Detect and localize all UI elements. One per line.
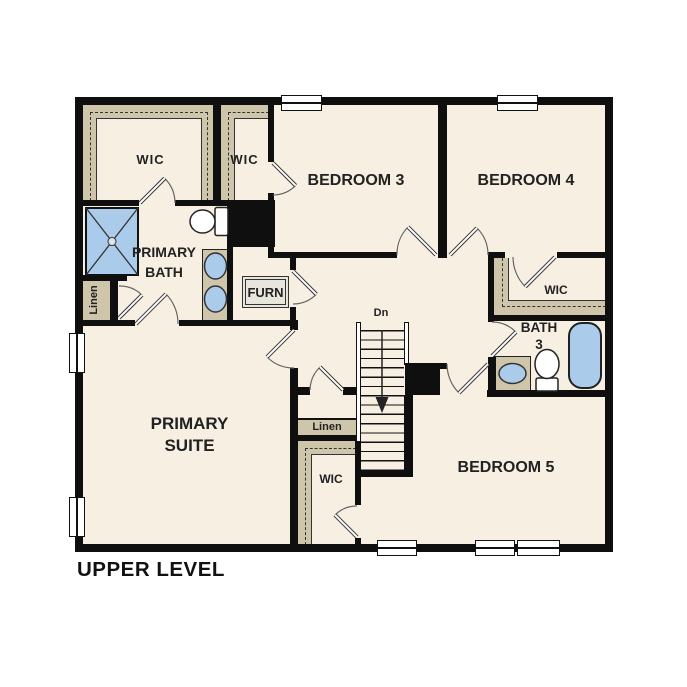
bedroom3-wic-label: WIC bbox=[221, 150, 268, 168]
primary-bath-label-line2: BATH bbox=[145, 262, 183, 282]
bath3-label-line1: BATH bbox=[521, 319, 558, 336]
bedroom5-label: BEDROOM 5 bbox=[426, 457, 586, 478]
stair-direction-label: Dn bbox=[364, 305, 398, 320]
primary-wic-label: WIC bbox=[93, 150, 208, 168]
primary-bath-door-arc bbox=[166, 294, 178, 324]
bedroom5-door-arc bbox=[447, 364, 459, 393]
floor-plan: FURN WIC WIC BEDROOM 3 BEDROOM 4 PRIMARY… bbox=[0, 0, 687, 687]
bedroom4-door-arc bbox=[477, 228, 488, 255]
primary-suite-label-line1: PRIMARY bbox=[151, 413, 229, 435]
primary-wic-door-arc bbox=[165, 178, 175, 203]
bath3-label-line2: 3 bbox=[535, 336, 543, 353]
primary-suite-label-line2: SUITE bbox=[164, 435, 214, 457]
bedroom3-door-arc bbox=[397, 227, 408, 255]
furnace-label: FURN bbox=[245, 279, 286, 305]
toilet-primary-bath bbox=[190, 208, 228, 236]
primary-bath-inner-door-arc bbox=[119, 286, 142, 295]
bathtub bbox=[569, 323, 601, 388]
bedroom4-wic-label: WIC bbox=[528, 282, 584, 298]
primary-bath-label: PRIMARY BATH bbox=[118, 241, 210, 283]
primary-suite-door-arc bbox=[267, 357, 294, 368]
bedroom3-label: BEDROOM 3 bbox=[276, 170, 436, 192]
furnace-door-arc bbox=[293, 294, 316, 304]
stair-down-arrow bbox=[376, 330, 389, 413]
sink bbox=[499, 364, 526, 384]
bedroom4-wic-door-arc bbox=[513, 257, 525, 287]
primary-bath-label-line1: PRIMARY bbox=[132, 242, 196, 262]
primary-suite-label: PRIMARY SUITE bbox=[118, 411, 261, 458]
bath3-label: BATH 3 bbox=[510, 319, 568, 353]
sink bbox=[205, 286, 227, 312]
bedroom5-wic-label: WIC bbox=[303, 471, 359, 487]
toilet-bath3 bbox=[535, 350, 559, 392]
hall-closet-door-arc bbox=[310, 367, 320, 390]
left-linen-label: Linen bbox=[86, 278, 102, 322]
bedroom5-wic-door-arc bbox=[335, 506, 357, 515]
doors-fixtures-layer bbox=[0, 0, 687, 687]
plan-title: UPPER LEVEL bbox=[77, 558, 225, 582]
center-linen-label: Linen bbox=[298, 419, 356, 434]
bedroom4-label: BEDROOM 4 bbox=[447, 170, 605, 192]
furnace-box: FURN bbox=[242, 276, 289, 308]
